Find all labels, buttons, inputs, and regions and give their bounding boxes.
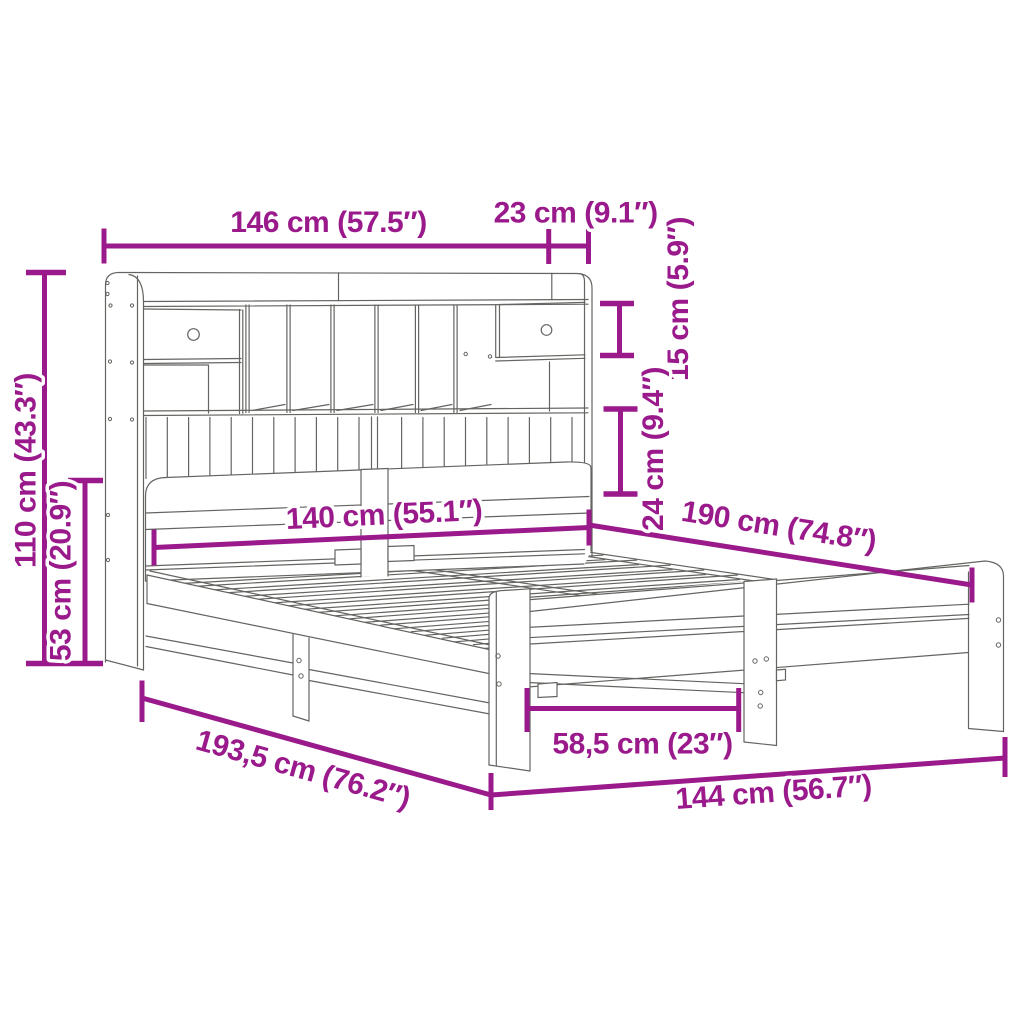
svg-text:15 cm (5.9″): 15 cm (5.9″) (662, 217, 695, 381)
svg-text:146 cm (57.5″): 146 cm (57.5″) (230, 206, 427, 239)
svg-text:53 cm (20.9″): 53 cm (20.9″) (45, 481, 78, 661)
svg-text:24 cm (9.4″): 24 cm (9.4″) (637, 367, 670, 531)
svg-text:110 cm (43.3″): 110 cm (43.3″) (10, 373, 43, 568)
svg-text:23 cm (9.1″): 23 cm (9.1″) (494, 197, 658, 230)
svg-text:58,5 cm (23″): 58,5 cm (23″) (552, 728, 732, 761)
